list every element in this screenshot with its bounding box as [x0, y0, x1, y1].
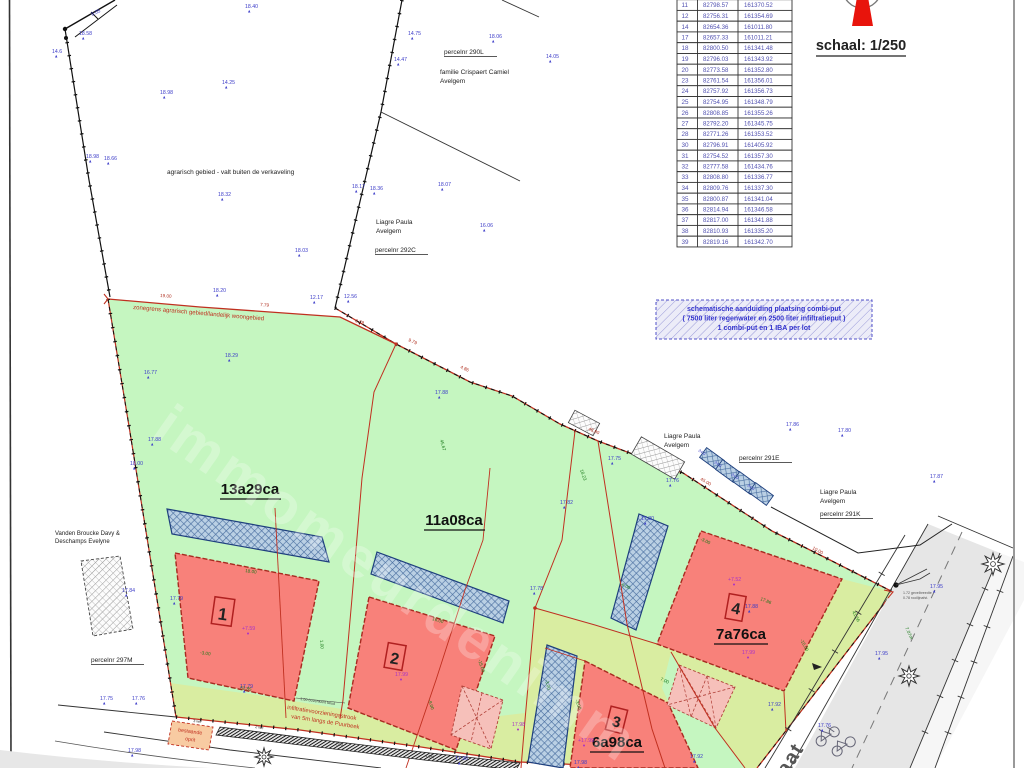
svg-text:18.36: 18.36 — [370, 186, 383, 192]
svg-text:14.6: 14.6 — [52, 49, 62, 55]
svg-text:17.78: 17.78 — [530, 586, 543, 592]
svg-text:17.92: 17.92 — [768, 702, 781, 708]
svg-text:Liagre Paula: Liagre Paula — [820, 489, 857, 496]
svg-text:11: 11 — [682, 2, 689, 9]
svg-text:14.05: 14.05 — [546, 54, 559, 60]
svg-text:+7.52: +7.52 — [728, 577, 741, 583]
svg-text:82817.00: 82817.00 — [703, 217, 729, 224]
svg-text:161341.48: 161341.48 — [744, 45, 773, 52]
svg-text:familie Crispaert Camiel: familie Crispaert Camiel — [440, 69, 510, 76]
svg-text:+7.59: +7.59 — [242, 626, 255, 632]
svg-text:161011.21: 161011.21 — [744, 35, 773, 42]
svg-text:161341.88: 161341.88 — [744, 217, 773, 224]
svg-text:18.17: 18.17 — [352, 184, 365, 190]
svg-text:17.88: 17.88 — [745, 604, 758, 610]
svg-text:82819.16: 82819.16 — [703, 239, 729, 246]
svg-text:0.78 rooilijnafst.: 0.78 rooilijnafst. — [903, 596, 928, 600]
svg-text:25: 25 — [682, 99, 690, 106]
svg-text:161348.79: 161348.79 — [744, 99, 773, 106]
svg-text:1 combi-put en 1 IBA per lot: 1 combi-put en 1 IBA per lot — [718, 325, 811, 332]
svg-text:12: 12 — [682, 13, 690, 20]
svg-text:82798.57: 82798.57 — [703, 2, 729, 9]
svg-text:82796.91: 82796.91 — [703, 142, 729, 149]
svg-text:18: 18 — [682, 45, 690, 52]
svg-text:17.87: 17.87 — [930, 474, 943, 480]
svg-text:38: 38 — [682, 228, 690, 235]
svg-text:percelnr 291K: percelnr 291K — [820, 511, 861, 518]
svg-text:161346.58: 161346.58 — [744, 207, 773, 214]
svg-text:161335.20: 161335.20 — [744, 228, 773, 235]
svg-text:23: 23 — [682, 78, 690, 85]
svg-text:161353.52: 161353.52 — [744, 131, 773, 138]
svg-text:82814.94: 82814.94 — [703, 207, 729, 214]
svg-text:17.92: 17.92 — [690, 754, 703, 760]
svg-text:161341.04: 161341.04 — [744, 196, 773, 203]
svg-text:82808.85: 82808.85 — [703, 110, 729, 117]
svg-text:19.00: 19.00 — [160, 293, 172, 299]
svg-text:percelnr 297M: percelnr 297M — [91, 657, 133, 664]
svg-text:82754.52: 82754.52 — [703, 153, 729, 160]
svg-text:30: 30 — [682, 142, 690, 149]
svg-text:17.82: 17.82 — [560, 500, 573, 506]
svg-text:18.07: 18.07 — [438, 182, 451, 188]
svg-text:82808.80: 82808.80 — [703, 174, 729, 181]
svg-text:37: 37 — [682, 217, 690, 224]
svg-text:24: 24 — [682, 88, 690, 95]
svg-text:17.75: 17.75 — [100, 696, 113, 702]
svg-text:7.79: 7.79 — [260, 302, 270, 308]
svg-text:82810.93: 82810.93 — [703, 228, 729, 235]
svg-text:161352.80: 161352.80 — [744, 67, 773, 74]
svg-text:percelnr 290L: percelnr 290L — [444, 49, 484, 56]
svg-text:17.76: 17.76 — [818, 723, 831, 729]
svg-text:19: 19 — [682, 56, 690, 63]
svg-text:161355.26: 161355.26 — [744, 110, 773, 117]
svg-text:161342.70: 161342.70 — [744, 239, 773, 246]
svg-text:82771.26: 82771.26 — [703, 131, 729, 138]
svg-text:28: 28 — [682, 131, 690, 138]
svg-text:agrarisch gebied - valt buiten: agrarisch gebied - valt buiten de verkav… — [167, 169, 295, 176]
svg-text:161345.75: 161345.75 — [744, 121, 773, 128]
svg-text:14.47: 14.47 — [394, 57, 407, 63]
svg-text:31: 31 — [682, 153, 690, 160]
svg-text:Liagre Paula: Liagre Paula — [376, 219, 413, 226]
svg-text:18.40: 18.40 — [245, 4, 258, 10]
svg-text:17.96: 17.96 — [455, 756, 468, 762]
svg-text:Vanden Broucke Davy &: Vanden Broucke Davy & — [55, 531, 120, 537]
svg-text:17.98: 17.98 — [512, 722, 525, 728]
svg-text:percelnr 291E: percelnr 291E — [739, 455, 780, 462]
svg-text:35: 35 — [682, 196, 690, 203]
svg-text:1.00: 1.00 — [319, 640, 325, 650]
svg-text:82757.92: 82757.92 — [703, 88, 729, 95]
svg-text:17.76: 17.76 — [666, 478, 679, 484]
svg-text:161370.52: 161370.52 — [744, 2, 773, 9]
svg-text:34: 34 — [682, 185, 690, 192]
svg-text:18.00: 18.00 — [130, 461, 143, 467]
svg-text:17.86: 17.86 — [786, 422, 799, 428]
svg-text:17.80: 17.80 — [641, 516, 654, 522]
svg-text:16.77: 16.77 — [144, 370, 157, 376]
svg-text:Avelgem: Avelgem — [664, 442, 689, 449]
svg-text:17.98: 17.98 — [128, 748, 141, 754]
svg-text:18.20: 18.20 — [213, 288, 226, 294]
svg-text:17.95: 17.95 — [930, 584, 943, 590]
svg-text:17: 17 — [682, 35, 690, 42]
svg-text:82754.95: 82754.95 — [703, 99, 729, 106]
svg-text:16.06: 16.06 — [480, 223, 493, 229]
svg-text:17.95: 17.95 — [875, 651, 888, 657]
svg-text:161405.92: 161405.92 — [744, 142, 773, 149]
svg-text:82792.20: 82792.20 — [703, 121, 729, 128]
svg-text:17.75: 17.75 — [608, 456, 621, 462]
svg-text:39: 39 — [682, 239, 690, 246]
svg-text:Avelgem: Avelgem — [440, 78, 465, 85]
svg-text:161356.73: 161356.73 — [744, 88, 773, 95]
svg-text:82756.31: 82756.31 — [703, 13, 729, 20]
svg-text:18.32: 18.32 — [218, 192, 231, 198]
svg-text:161354.69: 161354.69 — [744, 13, 773, 20]
svg-text:18.29: 18.29 — [225, 353, 238, 359]
svg-text:Avelgem: Avelgem — [820, 498, 845, 505]
svg-text:12.17: 12.17 — [310, 295, 323, 301]
svg-text:17.98: 17.98 — [574, 760, 587, 766]
svg-text:14: 14 — [682, 24, 690, 31]
svg-text:12.56: 12.56 — [344, 294, 357, 300]
svg-text:17.88: 17.88 — [435, 390, 448, 396]
svg-text:17.76: 17.76 — [132, 696, 145, 702]
svg-text:82657.33: 82657.33 — [703, 35, 729, 42]
svg-text:161337.30: 161337.30 — [744, 185, 773, 192]
svg-text:Avelgem: Avelgem — [376, 228, 401, 235]
svg-text:( 7500 liter regenwater en 250: ( 7500 liter regenwater en 2500 liter in… — [683, 316, 846, 323]
svg-text:82777.58: 82777.58 — [703, 164, 729, 171]
svg-text:percelnr 292C: percelnr 292C — [375, 247, 416, 254]
svg-text:33: 33 — [682, 174, 690, 181]
svg-text:161011.80: 161011.80 — [744, 24, 773, 31]
svg-text:82796.03: 82796.03 — [703, 56, 729, 63]
svg-text:schaal: 1/250: schaal: 1/250 — [816, 38, 906, 54]
svg-text:27: 27 — [682, 121, 690, 128]
svg-text:17.88: 17.88 — [148, 437, 161, 443]
svg-text:161357.30: 161357.30 — [744, 153, 773, 160]
svg-text:18.03: 18.03 — [295, 248, 308, 254]
svg-text:18.98: 18.98 — [160, 90, 173, 96]
svg-text:schematische aanduiding plaats: schematische aanduiding plaatsing combi-… — [687, 306, 842, 313]
svg-text:17.80: 17.80 — [838, 428, 851, 434]
svg-text:82654.36: 82654.36 — [703, 24, 729, 31]
svg-text:36: 36 — [682, 207, 690, 214]
svg-text:17.84: 17.84 — [122, 588, 135, 594]
svg-text:+17.99: +17.99 — [578, 738, 594, 744]
svg-text:26: 26 — [682, 110, 690, 117]
svg-text:17.79: 17.79 — [170, 596, 183, 602]
svg-text:18.66: 18.66 — [104, 156, 117, 162]
svg-text:161434.76: 161434.76 — [744, 164, 773, 171]
svg-text:Liagre Paula: Liagre Paula — [664, 433, 701, 440]
svg-text:82773.58: 82773.58 — [703, 67, 729, 74]
svg-text:18.58: 18.58 — [79, 31, 92, 37]
svg-text:14.25: 14.25 — [222, 80, 235, 86]
svg-text:82809.76: 82809.76 — [703, 185, 729, 192]
svg-text:82800.50: 82800.50 — [703, 45, 729, 52]
svg-text:18.98: 18.98 — [86, 154, 99, 160]
svg-text:7a76ca: 7a76ca — [716, 626, 767, 643]
svg-text:17.99: 17.99 — [742, 650, 755, 656]
svg-text:14.75: 14.75 — [408, 31, 421, 37]
svg-text:161356.01: 161356.01 — [744, 78, 773, 85]
svg-text:1.72 gevelbreedte: 1.72 gevelbreedte — [903, 591, 932, 595]
svg-text:161343.92: 161343.92 — [744, 56, 773, 63]
svg-text:17.99: 17.99 — [395, 672, 408, 678]
svg-text:11a08ca: 11a08ca — [425, 512, 483, 529]
svg-text:82800.87: 82800.87 — [703, 196, 729, 203]
svg-text:18.06: 18.06 — [489, 34, 502, 40]
svg-text:161336.77: 161336.77 — [744, 174, 773, 181]
svg-text:82761.54: 82761.54 — [703, 78, 729, 85]
svg-text:32: 32 — [682, 164, 690, 171]
svg-text:20: 20 — [682, 67, 690, 74]
svg-text:Deschamps Evelyne: Deschamps Evelyne — [55, 539, 110, 545]
